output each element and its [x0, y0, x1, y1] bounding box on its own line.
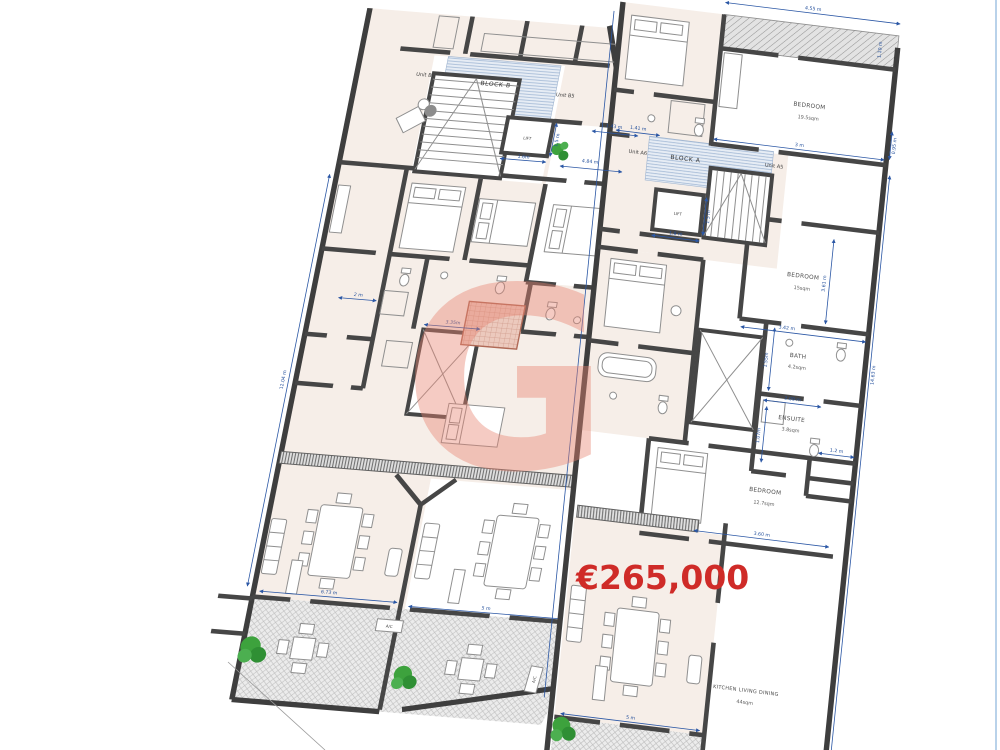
dimension-label: 1.6m	[517, 154, 531, 161]
ac-unit: A/C	[375, 619, 403, 633]
watermark-letter: G	[403, 235, 610, 528]
dimension-label: 0.95 m	[891, 137, 899, 155]
lift-b: LIFT	[501, 117, 554, 156]
dimension-label: 3 m	[795, 142, 805, 149]
dimension-label: 4.55 m	[805, 5, 822, 13]
floor-plan-drawing: LIFT	[0, 0, 1000, 750]
armchair-icon	[686, 655, 702, 684]
sink-icon	[609, 392, 617, 400]
price-label: €265,000	[575, 558, 749, 597]
ac-label: A/C	[385, 623, 393, 628]
lift-a: LIFT	[652, 189, 704, 235]
dimension-label: 2 m	[353, 292, 364, 299]
dimension-label: 5 m	[481, 605, 492, 612]
staircase-icon	[704, 168, 773, 245]
bed-icon	[604, 258, 666, 332]
bed-icon	[651, 448, 708, 524]
dimension-label: 14.63 m	[870, 365, 878, 386]
bed-icon	[625, 15, 689, 86]
dimension-label: 5 m	[626, 715, 636, 722]
sink-icon	[786, 339, 794, 347]
lift-label: LIFT	[674, 211, 683, 217]
floor-plan-page: LIFT	[0, 0, 1000, 750]
light-well-shaft-icon	[691, 330, 763, 430]
sink-icon	[648, 114, 656, 122]
lift-label: LIFT	[523, 135, 533, 141]
staircase-icon	[414, 73, 519, 178]
